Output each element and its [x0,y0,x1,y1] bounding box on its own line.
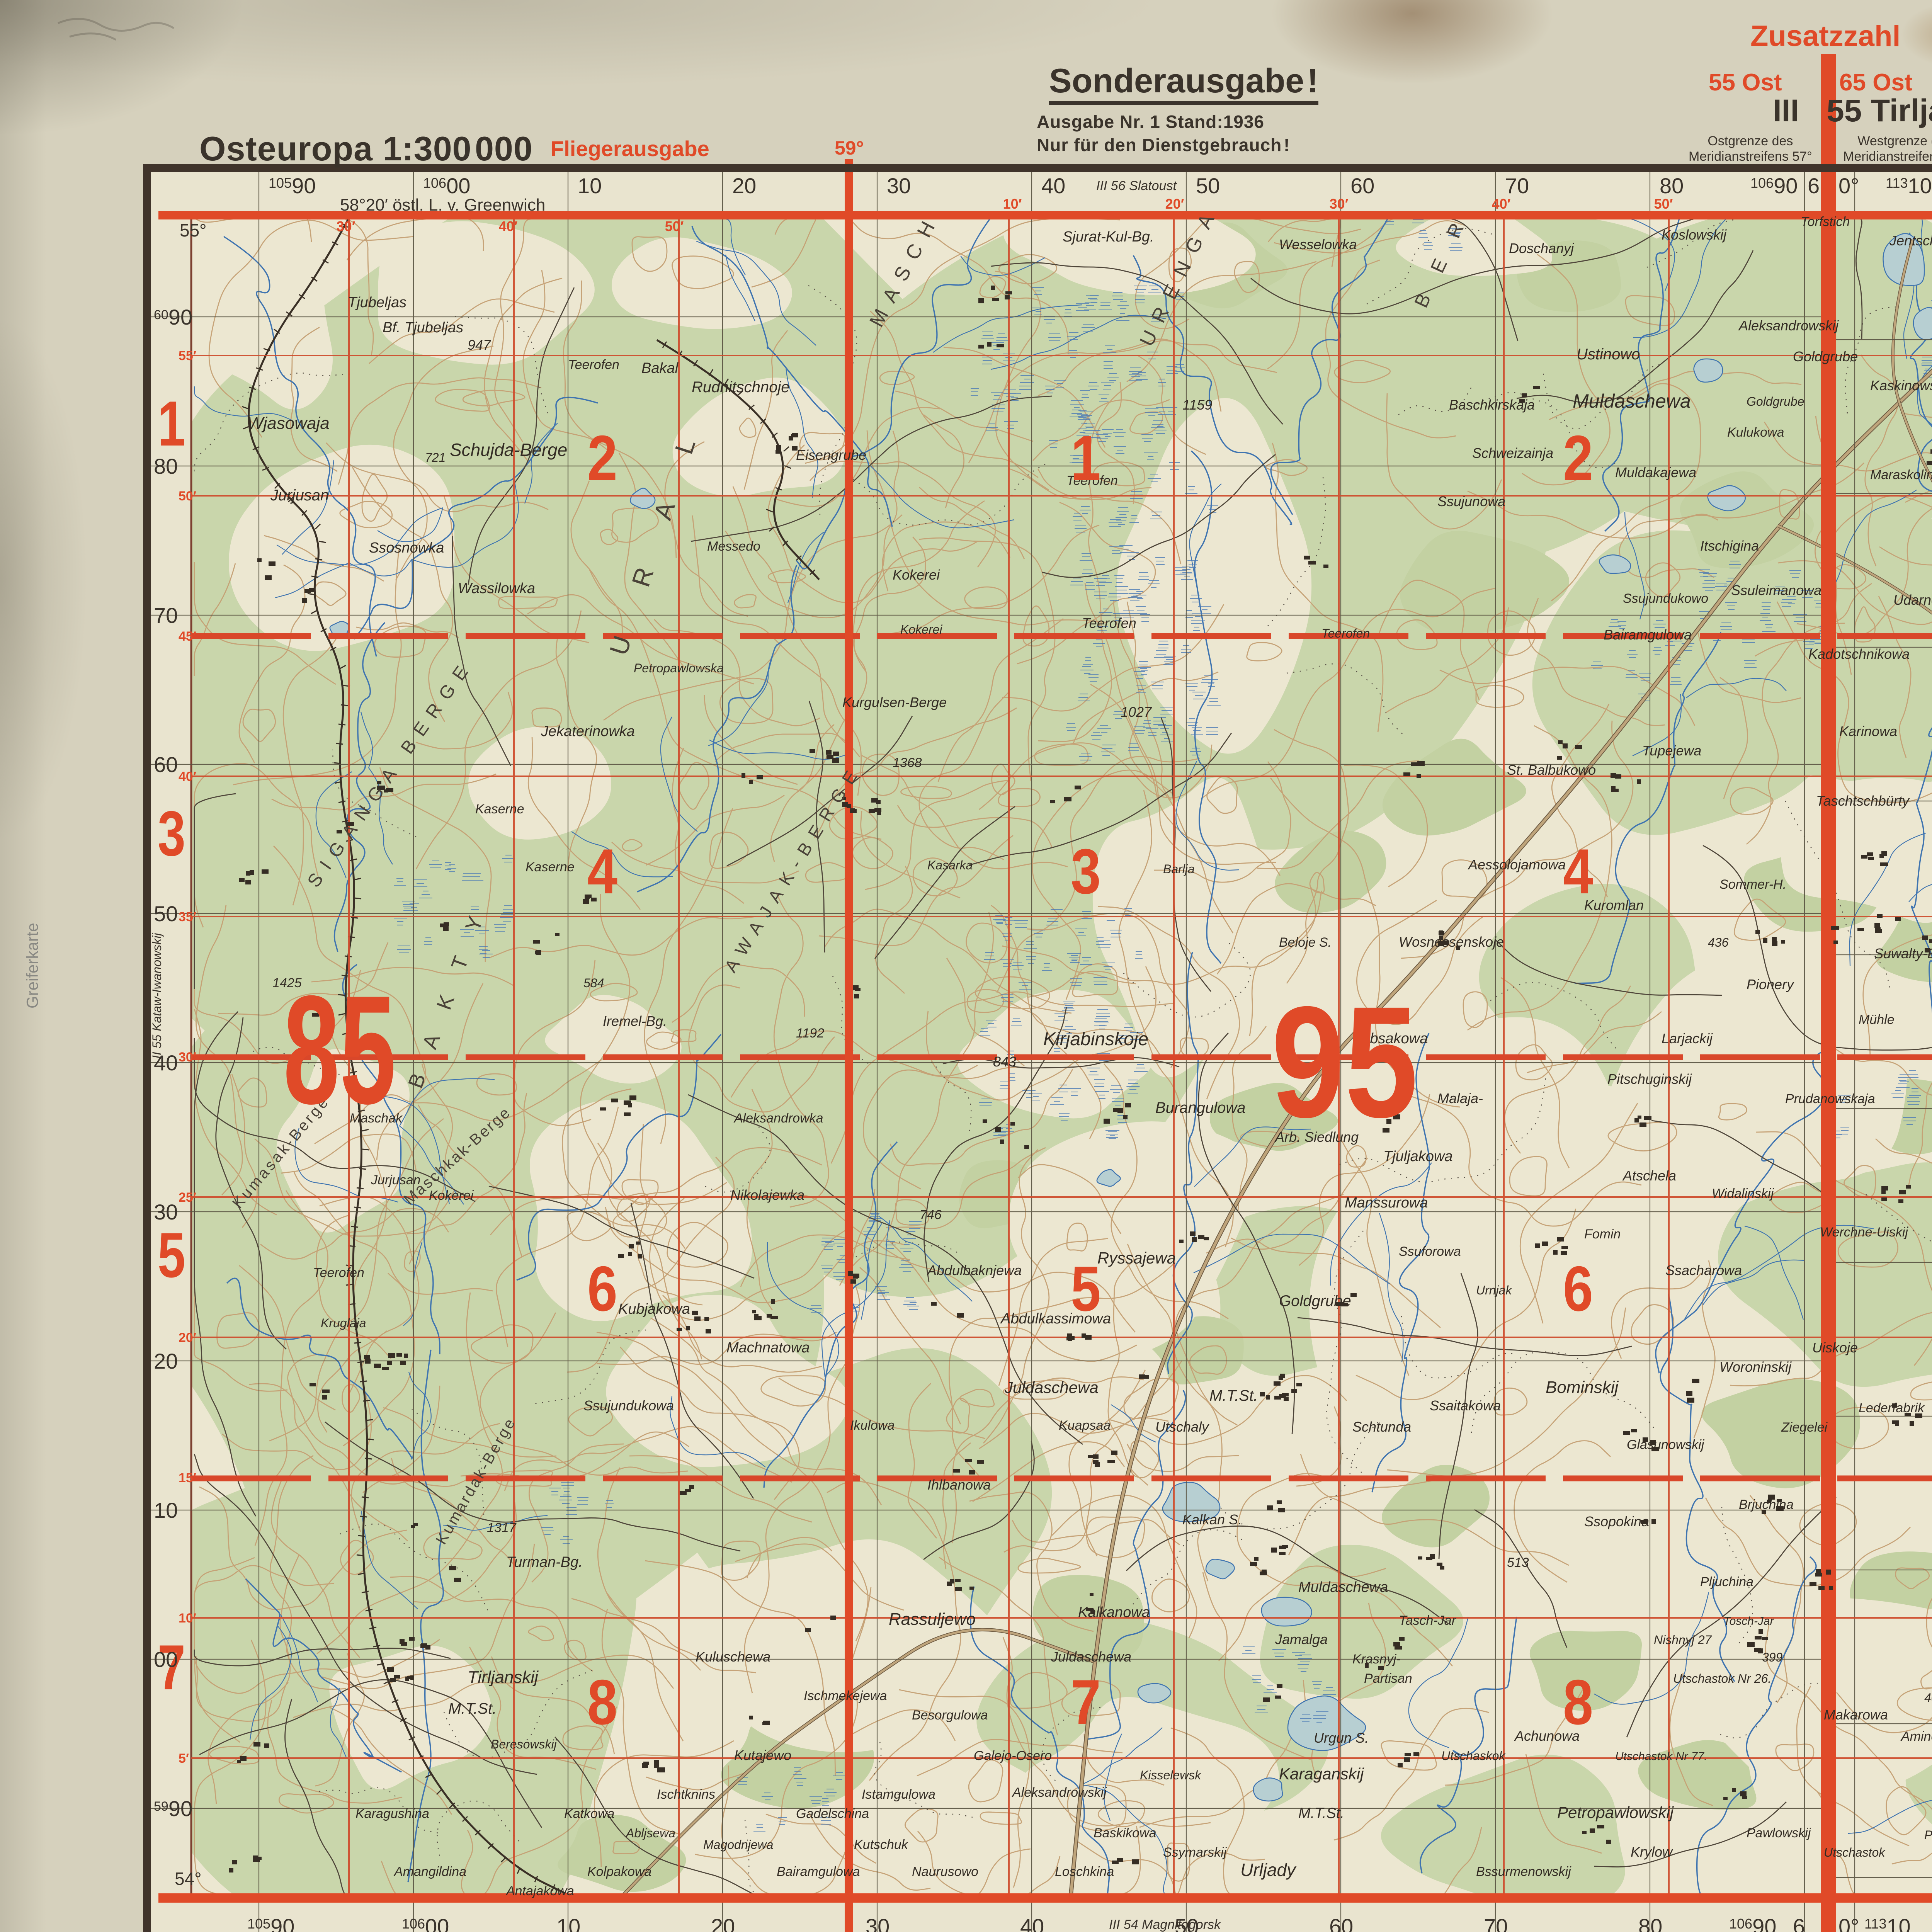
svg-text:59°: 59° [835,137,864,159]
